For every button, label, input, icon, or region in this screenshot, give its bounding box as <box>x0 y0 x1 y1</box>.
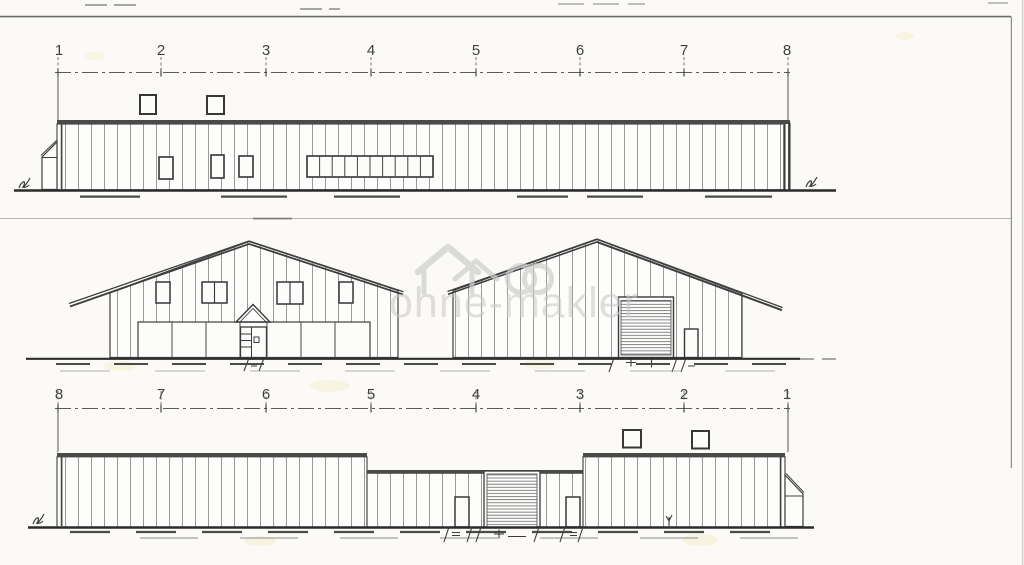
sectional-door <box>484 471 540 527</box>
hand-mark-right <box>806 177 817 187</box>
grid-label-bottom-4: 4 <box>472 386 480 403</box>
grid-extension-lines-top <box>58 73 788 121</box>
grid-row-top: 1 2 3 4 5 6 7 8 <box>55 42 791 121</box>
watermark-text: ohne-makler <box>389 279 639 327</box>
side-elevation-bottom <box>28 430 814 542</box>
window <box>211 155 224 178</box>
roof-window <box>623 430 641 448</box>
eaves-band-tall-right <box>583 453 785 457</box>
copy-streak <box>558 3 1008 4</box>
window <box>239 156 253 177</box>
grid-label-top-6: 6 <box>576 42 584 59</box>
hand-mark-left <box>33 514 44 524</box>
window <box>159 157 173 179</box>
grid-label-bottom-3: 3 <box>576 386 584 403</box>
roof-window <box>207 96 224 114</box>
window <box>156 282 170 303</box>
grid-extension-lines-bottom <box>58 409 788 452</box>
service-door <box>685 329 699 358</box>
grid-label-stubs-bottom <box>58 391 788 407</box>
grid-label-bottom-7: 7 <box>157 386 165 403</box>
facade-wall-tall-right <box>583 457 785 527</box>
lean-to-left <box>42 142 57 190</box>
grid-label-top-1: 1 <box>55 42 63 59</box>
service-door <box>455 497 469 527</box>
hand-mark-left <box>19 178 30 188</box>
grid-label-top-4: 4 <box>367 42 375 59</box>
roof-window <box>140 95 156 114</box>
smudge <box>244 536 276 546</box>
grid-label-stubs-top <box>58 57 788 71</box>
grid-label-bottom-2: 2 <box>680 386 688 403</box>
grid-label-top-7: 7 <box>680 42 688 59</box>
middle-ground <box>26 359 842 371</box>
elevation-drawing: 1 2 3 4 5 6 7 8 <box>0 0 1024 565</box>
gable-elevation-left <box>69 241 404 371</box>
grid-label-top-8: 8 <box>783 42 791 59</box>
eaves-band-low <box>367 470 583 473</box>
grid-row-bottom: 8 7 6 5 4 3 2 1 <box>55 386 791 452</box>
lean-to-right <box>785 475 803 527</box>
double-window <box>202 282 227 303</box>
window <box>339 282 353 303</box>
grid-label-bottom-6: 6 <box>262 386 270 403</box>
eaves-band <box>57 120 790 124</box>
roof-window <box>692 431 709 449</box>
grid-label-bottom-8: 8 <box>55 386 63 403</box>
smudge <box>896 32 914 40</box>
datum-slashes <box>444 527 583 542</box>
sectional-door-slats <box>487 474 537 527</box>
grid-label-top-5: 5 <box>472 42 480 59</box>
grid-label-top-3: 3 <box>262 42 270 59</box>
grid-label-bottom-1: 1 <box>783 386 791 403</box>
side-elevation-top <box>14 95 836 197</box>
smudge <box>104 361 136 371</box>
eaves-band-tall-left <box>57 453 367 457</box>
smudge <box>85 52 105 60</box>
double-window <box>277 282 303 304</box>
facade-wall-tall-left <box>57 457 367 527</box>
grid-label-bottom-5: 5 <box>367 386 375 403</box>
strip-window <box>307 156 433 177</box>
copy-streak <box>85 5 340 9</box>
grid-label-top-2: 2 <box>157 42 165 59</box>
facade-wall-low <box>367 473 583 527</box>
scanned-elevation-sheet: 1 2 3 4 5 6 7 8 <box>0 0 1024 565</box>
service-door <box>566 497 580 527</box>
smudge <box>310 380 350 392</box>
smudge <box>682 534 718 546</box>
